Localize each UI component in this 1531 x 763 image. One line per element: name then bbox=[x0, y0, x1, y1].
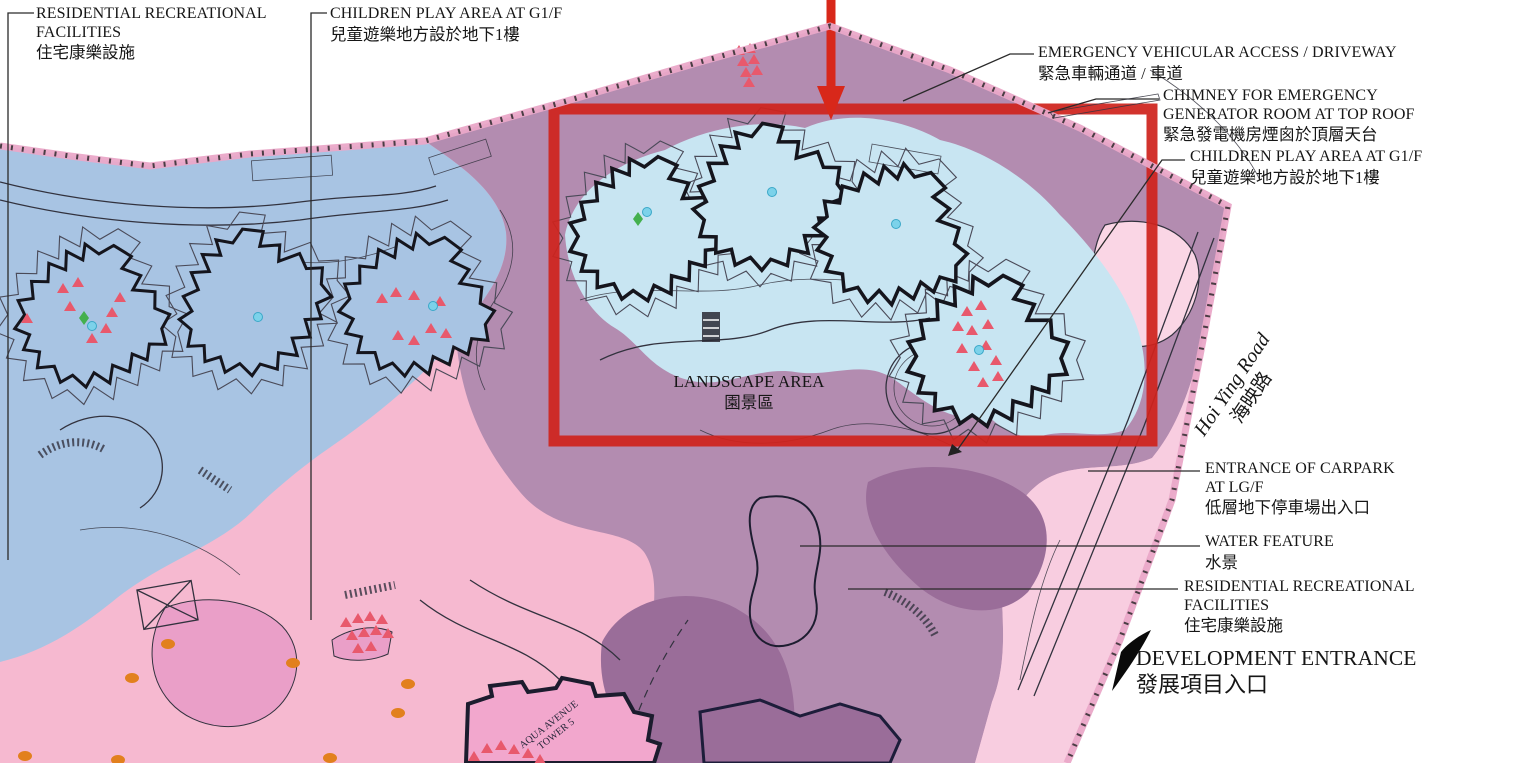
label-text: ENTRANCE OF CARPARK bbox=[1205, 460, 1395, 479]
label-text: 發展項目入口 bbox=[1136, 671, 1417, 700]
label-chimney: CHIMNEY FOR EMERGENCY GENERATOR ROOM AT … bbox=[1163, 87, 1415, 146]
label-text: 低層地下停車場出入口 bbox=[1205, 497, 1395, 518]
label-text: 住宅康樂設施 bbox=[36, 42, 267, 63]
label-text: RESIDENTIAL RECREATIONAL bbox=[36, 5, 267, 24]
label-text: CHILDREN PLAY AREA AT G1/F bbox=[330, 5, 562, 24]
label-text: DEVELOPMENT ENTRANCE bbox=[1136, 646, 1417, 671]
label-text: 住宅康樂設施 bbox=[1184, 615, 1415, 636]
label-children-play-right: CHILDREN PLAY AREA AT G1/F 兒童遊樂地方設於地下1樓 bbox=[1190, 148, 1422, 188]
label-text: AT LG/F bbox=[1205, 479, 1395, 498]
label-text: 園景區 bbox=[673, 392, 824, 413]
label-text: LANDSCAPE AREA bbox=[673, 372, 824, 392]
label-carpark-entrance: ENTRANCE OF CARPARK AT LG/F 低層地下停車場出入口 bbox=[1205, 460, 1395, 519]
label-text: FACILITIES bbox=[1184, 597, 1415, 616]
label-text: EMERGENCY VEHICULAR ACCESS / DRIVEWAY bbox=[1038, 44, 1397, 63]
label-text: 緊急發電機房煙囪於頂層天台 bbox=[1163, 124, 1415, 145]
zones bbox=[0, 26, 1228, 763]
label-water-feature: WATER FEATURE 水景 bbox=[1205, 533, 1334, 573]
label-text: FACILITIES bbox=[36, 24, 267, 43]
label-emergency-vehicular-access: EMERGENCY VEHICULAR ACCESS / DRIVEWAY 緊急… bbox=[1038, 44, 1397, 84]
label-text: CHILDREN PLAY AREA AT G1/F bbox=[1190, 148, 1422, 167]
site-plan-page: RESIDENTIAL RECREATIONAL FACILITIES 住宅康樂… bbox=[0, 0, 1531, 763]
label-text: 兒童遊樂地方設於地下1樓 bbox=[1190, 167, 1422, 188]
label-residential-recreational-left: RESIDENTIAL RECREATIONAL FACILITIES 住宅康樂… bbox=[36, 5, 267, 64]
label-text: 兒童遊樂地方設於地下1樓 bbox=[330, 24, 562, 45]
label-residential-recreational-right: RESIDENTIAL RECREATIONAL FACILITIES 住宅康樂… bbox=[1184, 578, 1415, 637]
label-text: WATER FEATURE bbox=[1205, 533, 1334, 552]
label-development-entrance: DEVELOPMENT ENTRANCE 發展項目入口 bbox=[1136, 646, 1417, 700]
label-children-play-top: CHILDREN PLAY AREA AT G1/F 兒童遊樂地方設於地下1樓 bbox=[330, 5, 562, 45]
label-text: RESIDENTIAL RECREATIONAL bbox=[1184, 578, 1415, 597]
label-text: CHIMNEY FOR EMERGENCY bbox=[1163, 87, 1415, 106]
label-text: GENERATOR ROOM AT TOP ROOF bbox=[1163, 106, 1415, 125]
label-text: 水景 bbox=[1205, 552, 1334, 573]
label-text: 緊急車輛通道 / 車道 bbox=[1038, 63, 1397, 84]
label-landscape-area: LANDSCAPE AREA 園景區 bbox=[673, 372, 824, 413]
